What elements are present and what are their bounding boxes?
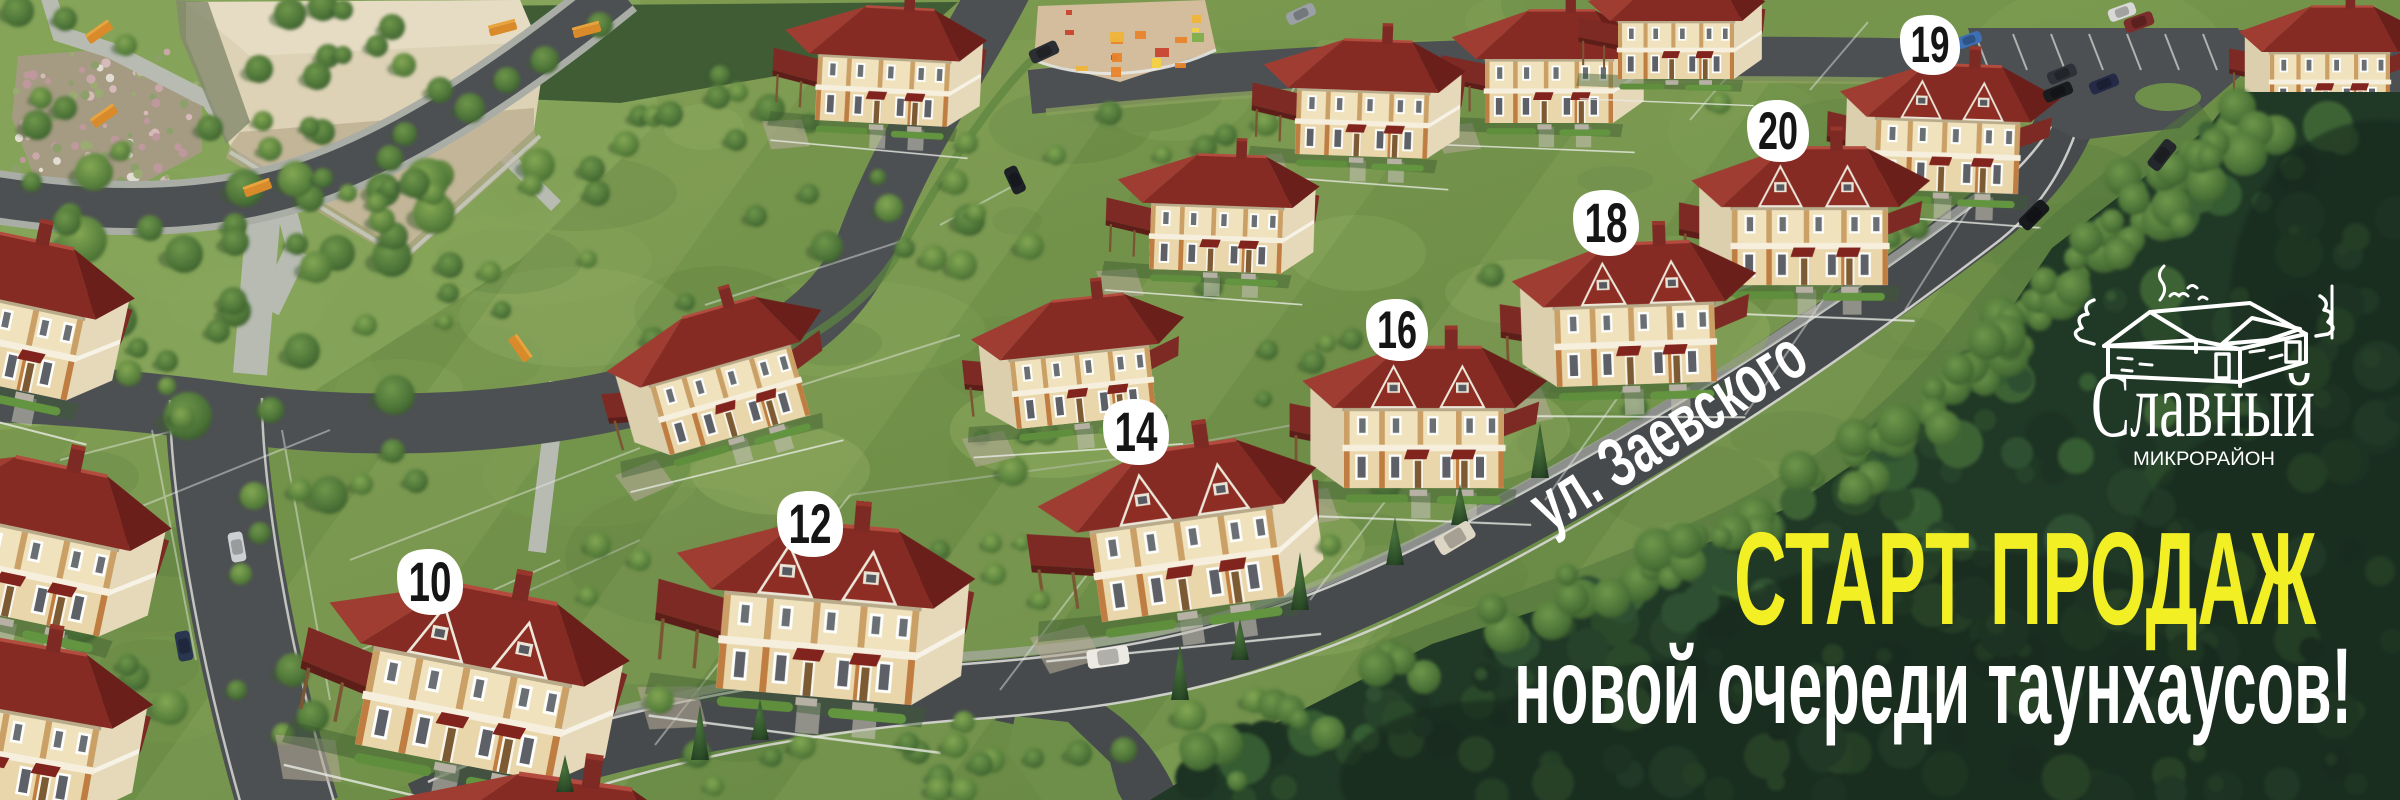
svg-text:14: 14 (1115, 400, 1158, 463)
svg-text:10: 10 (409, 550, 452, 613)
svg-text:16: 16 (1377, 301, 1417, 360)
svg-text:МИКРОРАЙОН: МИКРОРАЙОН (2133, 448, 2275, 470)
svg-text:новой очереди таунхаусов!: новой очереди таунхаусов! (1514, 625, 2352, 746)
svg-text:Славный: Славный (2091, 354, 2315, 456)
svg-text:18: 18 (1585, 191, 1628, 254)
svg-text:20: 20 (1758, 102, 1798, 161)
svg-text:12: 12 (789, 492, 832, 555)
svg-text:19: 19 (1911, 16, 1950, 73)
